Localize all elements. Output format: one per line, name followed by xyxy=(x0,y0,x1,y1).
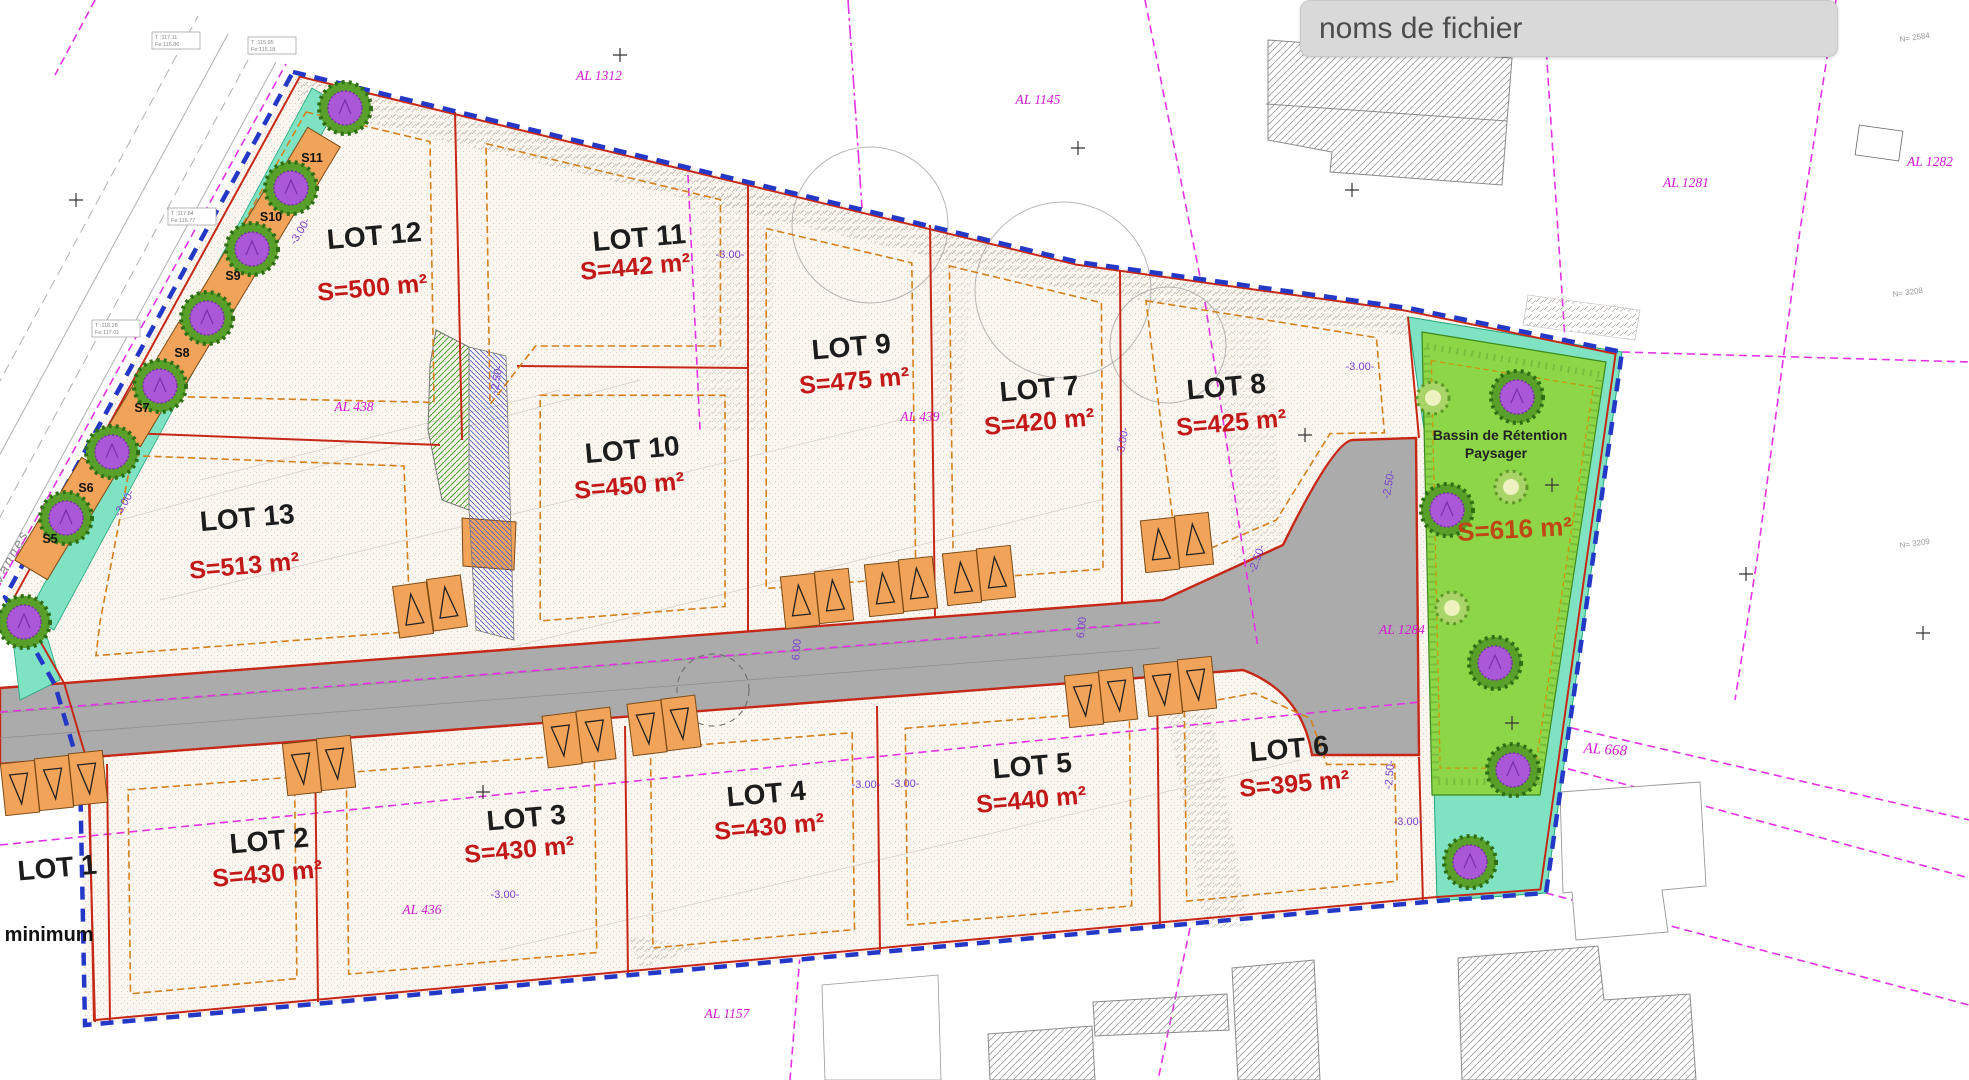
svg-text:-3.00-: -3.00- xyxy=(1346,361,1375,373)
spot-s8: S8 xyxy=(174,346,189,360)
survey-point: T :118.28 xyxy=(95,323,118,329)
svg-text:-3.00-: -3.00- xyxy=(852,779,881,791)
lot-1-note: s minimum xyxy=(0,924,94,946)
plan-viewer: Rue de Vannes xyxy=(0,0,1969,1080)
svg-text:-3.00-: -3.00- xyxy=(891,778,920,790)
parcel-al-436: AL 436 xyxy=(401,902,441,917)
parcel-al-1312: AL 1312 xyxy=(575,68,622,83)
basin-title-line2: Paysager xyxy=(1465,445,1528,461)
tree-icon xyxy=(0,596,50,648)
svg-text:-3.00-: -3.00- xyxy=(491,889,520,901)
basin-area: S=616 m² xyxy=(1456,511,1573,547)
building-outline-east xyxy=(1855,125,1903,161)
svg-text:Fe:116.86: Fe:116.86 xyxy=(155,42,179,48)
svg-text:6.00: 6.00 xyxy=(790,639,804,661)
spot-s6: S6 xyxy=(78,481,93,495)
svg-text:-3.00-: -3.00- xyxy=(1394,816,1423,828)
parcel-al-1157: AL 1157 xyxy=(704,1006,751,1021)
survey-point: T :117.11 xyxy=(155,35,177,41)
svg-text:-2.50-: -2.50- xyxy=(1383,760,1397,790)
parcel-al-439: AL 439 xyxy=(899,409,939,424)
parcel-al-1281: AL 1281 xyxy=(1662,175,1709,190)
spot-s5: S5 xyxy=(42,532,57,546)
parcel-al-1284: AL 1284 xyxy=(1378,622,1425,637)
spot-s9: S9 xyxy=(225,269,240,283)
svg-text:Fe:115.18: Fe:115.18 xyxy=(251,47,275,53)
svg-text:-3.00-: -3.00- xyxy=(716,249,745,261)
parcel-al-1282: AL 1282 xyxy=(1906,154,1953,169)
parcel-al-1145: AL 1145 xyxy=(1015,92,1061,107)
filename-input[interactable]: noms de fichier xyxy=(1300,0,1838,57)
svg-text:Fe:117.01: Fe:117.01 xyxy=(95,330,119,336)
spot-s11: S11 xyxy=(301,151,323,165)
spot-s7: S7 xyxy=(134,401,149,415)
spot-s10: S10 xyxy=(260,210,282,224)
parcel-al-668: AL 668 xyxy=(1582,740,1628,759)
survey-point: T :117.84 xyxy=(171,211,194,217)
parcel-al-438: AL 438 xyxy=(333,399,373,414)
basin-title-line1: Bassin de Rétention xyxy=(1433,427,1568,443)
site-plan: Rue de Vannes xyxy=(0,0,1969,1080)
svg-text:Fe:116.77: Fe:116.77 xyxy=(171,218,195,224)
survey-point: T :115.95 xyxy=(251,40,274,46)
